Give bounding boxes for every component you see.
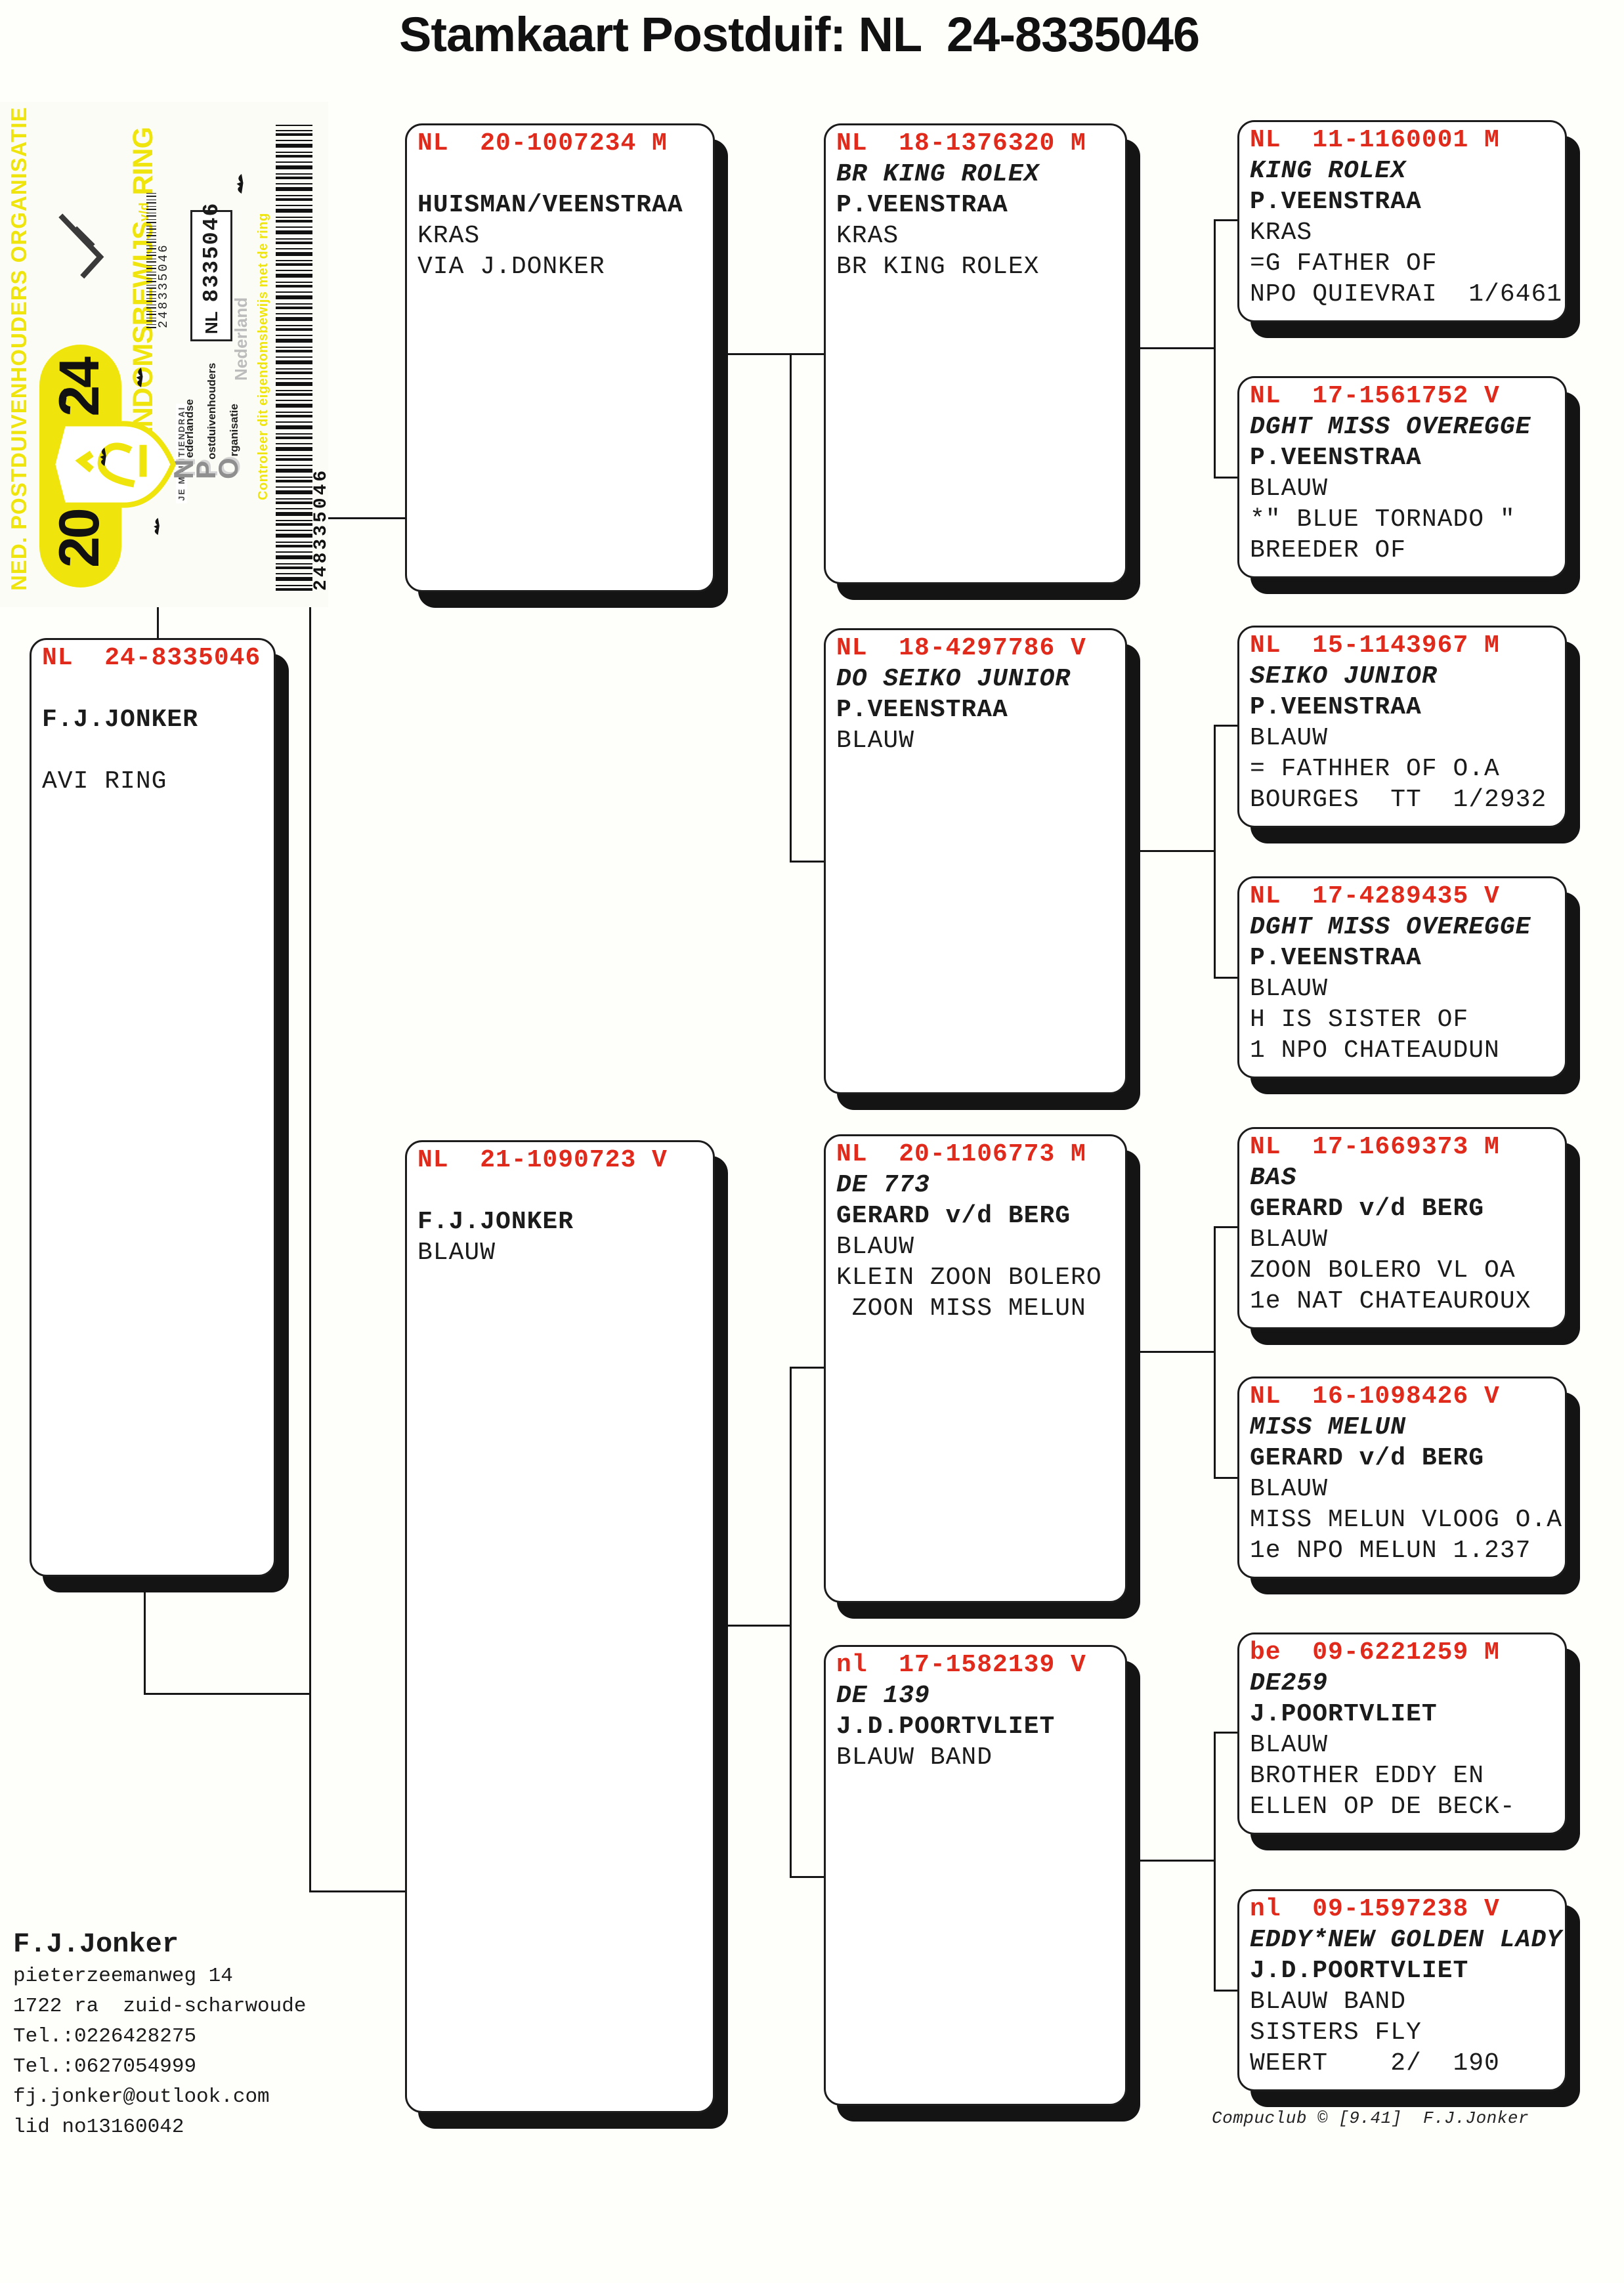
owner-name: HUISMAN/VEENSTRAA bbox=[417, 190, 709, 221]
pedigree-box-grandfather-paternal: NL 18-1376320 M BR KING ROLEX P.VEENSTRA… bbox=[824, 123, 1127, 584]
owner-name: J.POORTVLIET bbox=[1250, 1699, 1561, 1730]
ownership-ring: RING bbox=[127, 127, 159, 196]
connector-line bbox=[790, 1876, 825, 1878]
pedigree-box-grandmother-paternal: NL 18-4297786 V DO SEIKO JUNIOR P.VEENST… bbox=[824, 628, 1127, 1094]
pigeon-name: MISS MELUN bbox=[1250, 1412, 1561, 1443]
connector-line bbox=[790, 861, 825, 863]
pedigree-box-greatgrandparent-2: NL 17-1561752 V DGHT MISS OVEREGGE P.VEE… bbox=[1237, 376, 1567, 578]
npo-row: Postduivenhouders bbox=[190, 363, 213, 479]
ring-number-box: NL 8335046 bbox=[190, 210, 232, 341]
address-line: pieterzeemanweg 14 bbox=[13, 1961, 306, 1992]
owner-name: P.VEENSTRAA bbox=[1250, 186, 1561, 217]
color-line: BLAUW bbox=[1250, 473, 1561, 504]
note-line: 1 NPO CHATEAUDUN bbox=[1250, 1035, 1561, 1066]
note-line: BROTHER EDDY EN bbox=[1250, 1760, 1561, 1791]
note-line: *" BLUE TORNADO " bbox=[1250, 504, 1561, 535]
small-barcode bbox=[146, 190, 156, 328]
ring-number: nl 09-1597238 V bbox=[1250, 1894, 1561, 1925]
note-line: AVI RING bbox=[42, 766, 270, 797]
phone-line: Tel.:0226428275 bbox=[13, 2022, 306, 2052]
nederland-watermark: Nederland bbox=[231, 297, 251, 381]
pedigree-box-father: NL 20-1007234 M HUISMAN/VEENSTRAA KRAS V… bbox=[405, 123, 715, 592]
note-line: 1e NPO MELUN 1.237 bbox=[1250, 1535, 1561, 1566]
owner-name: J.D.POORTVLIET bbox=[836, 1711, 1121, 1742]
barcode bbox=[276, 125, 312, 591]
pedigree-box-greatgrandparent-8: nl 09-1597238 V EDDY*NEW GOLDEN LADY J.D… bbox=[1237, 1889, 1567, 2091]
ring-country: NL bbox=[202, 311, 222, 334]
color-line bbox=[42, 735, 270, 766]
phone-line: Tel.:0627054999 bbox=[13, 2052, 306, 2082]
ring-number: NL 17-1669373 M bbox=[1250, 1132, 1561, 1163]
software-credit: Compuclub © [9.41] F.J.Jonker bbox=[1212, 2108, 1529, 2128]
connector-line bbox=[1214, 1226, 1239, 1228]
pedigree-box-greatgrandparent-6: NL 16-1098426 V MISS MELUN GERARD v/d BE… bbox=[1237, 1376, 1567, 1579]
ring-number: NL 15-1143967 M bbox=[1250, 630, 1561, 661]
connector-line bbox=[1127, 850, 1216, 852]
ring-digits: 8335046 bbox=[200, 202, 224, 303]
owner-name: GERARD v/d BERG bbox=[836, 1201, 1121, 1231]
pigeon-silhouette-icon bbox=[98, 448, 111, 466]
color-line: KRAS bbox=[836, 221, 1121, 251]
owner-name: J.D.POORTVLIET bbox=[1250, 1955, 1561, 1986]
connector-line bbox=[1127, 1351, 1216, 1353]
color-line: BLAUW bbox=[1250, 1224, 1561, 1255]
connector-line bbox=[1214, 1732, 1216, 1992]
color-line: BLAUW bbox=[836, 725, 1121, 756]
color-line: BLAUW bbox=[417, 1237, 709, 1268]
owner-name: P.VEENSTRAA bbox=[836, 190, 1121, 221]
pedigree-box-mother: NL 21-1090723 V F.J.JONKER BLAUW bbox=[405, 1140, 715, 2113]
note-line bbox=[836, 1773, 1121, 1804]
connector-line bbox=[1214, 1226, 1216, 1479]
ring-number: NL 21-1090723 V bbox=[417, 1145, 709, 1176]
pigeon-name bbox=[417, 159, 709, 190]
ring-number: NL 18-4297786 V bbox=[836, 633, 1121, 664]
connector-line bbox=[144, 1575, 146, 1695]
pigeon-silhouette-icon bbox=[135, 368, 148, 387]
owner-name: GERARD v/d BERG bbox=[1250, 1443, 1561, 1474]
ring-ownership-sticker: NED. POSTDUIVENHOUDERS ORGANISATIE 20 24… bbox=[0, 102, 328, 607]
note-line: 1e NAT CHATEAUROUX bbox=[1250, 1286, 1561, 1317]
color-line: KRAS bbox=[417, 221, 709, 251]
pigeon-name: KING ROLEX bbox=[1250, 156, 1561, 186]
ring-number: be 09-6221259 M bbox=[1250, 1637, 1561, 1668]
note-line bbox=[417, 282, 709, 313]
note-line: ZOON BOLERO VL OA bbox=[1250, 1255, 1561, 1286]
color-line: BLAUW BAND bbox=[1250, 1986, 1561, 2017]
controleer-line: Controleer dit eigendomsbewijs met de ri… bbox=[256, 213, 271, 500]
ring-number: NL 17-1561752 V bbox=[1250, 381, 1561, 412]
pigeon-name: SEIKO JUNIOR bbox=[1250, 661, 1561, 692]
connector-line bbox=[144, 1693, 311, 1695]
color-line: BLAUW bbox=[1250, 973, 1561, 1004]
note-line: VIA J.DONKER bbox=[417, 251, 709, 282]
pigeon-name: DGHT MISS OVEREGGE bbox=[1250, 412, 1561, 442]
pigeon-name: DE 773 bbox=[836, 1170, 1121, 1201]
npo-org-line: NED. POSTDUIVENHOUDERS ORGANISATIE bbox=[7, 107, 32, 591]
ring-number: NL 11-1160001 M bbox=[1250, 125, 1561, 156]
connector-line bbox=[716, 1625, 791, 1627]
pen-mark-icon bbox=[56, 210, 108, 282]
year-left: 20 bbox=[47, 510, 112, 568]
note-line: BREEDER OF bbox=[1250, 535, 1561, 566]
pedigree-box-subject: NL 24-8335046 F.J.JONKER AVI RING bbox=[30, 638, 276, 1577]
note-line: SISTERS FLY bbox=[1250, 2017, 1561, 2048]
pigeon-name bbox=[42, 673, 270, 704]
connector-line bbox=[1127, 1860, 1216, 1862]
connector-line bbox=[309, 1890, 406, 1892]
ring-number: NL 17-4289435 V bbox=[1250, 881, 1561, 912]
color-line: BLAUW bbox=[836, 1231, 1121, 1262]
page-title: Stamkaart Postduif: NL 24-8335046 bbox=[399, 7, 1199, 62]
ring-number: NL 20-1007234 M bbox=[417, 128, 709, 159]
connector-line bbox=[790, 1367, 825, 1369]
pedigree-box-greatgrandparent-7: be 09-6221259 M DE259 J.POORTVLIET BLAUW… bbox=[1237, 1632, 1567, 1835]
owner-name: P.VEENSTRAA bbox=[1250, 692, 1561, 723]
note-line: = FATHHER OF O.A bbox=[1250, 754, 1561, 784]
note-line: ELLEN OP DE BECK- bbox=[1250, 1791, 1561, 1822]
note-line: MISS MELUN VLOOG O.A bbox=[1250, 1504, 1561, 1535]
owner-name: F.J.JONKER bbox=[42, 704, 270, 735]
pigeon-silhouette-icon bbox=[58, 388, 72, 410]
connector-line bbox=[1214, 977, 1239, 979]
pigeon-name bbox=[417, 1176, 709, 1206]
note-line: NPO QUIEVRAI 1/6461 bbox=[1250, 279, 1561, 310]
connector-line bbox=[1214, 477, 1239, 479]
pedigree-box-greatgrandparent-5: NL 17-1669373 M BAS GERARD v/d BERG BLAU… bbox=[1237, 1127, 1567, 1329]
fancier-name: F.J.Jonker bbox=[13, 1927, 306, 1961]
lion-crest-icon bbox=[47, 420, 182, 509]
small-barcode-number: 248335046 bbox=[156, 243, 171, 328]
owner-name: P.VEENSTRAA bbox=[1250, 943, 1561, 973]
color-line: BLAUW bbox=[1250, 723, 1561, 754]
pigeon-name: DE259 bbox=[1250, 1668, 1561, 1699]
connector-line bbox=[790, 1367, 792, 1878]
connector-line bbox=[1214, 725, 1239, 727]
fancier-contact-block: F.J.Jonker pieterzeemanweg 14 1722 ra zu… bbox=[13, 1927, 306, 2143]
note-line: BOURGES TT 1/2932 bbox=[1250, 784, 1561, 815]
pigeon-name: DE 139 bbox=[836, 1680, 1121, 1711]
barcode-number: 248335046 bbox=[311, 468, 331, 591]
note-line bbox=[417, 1299, 709, 1330]
note-line: H IS SISTER OF bbox=[1250, 1004, 1561, 1035]
ring-number: NL 16-1098426 V bbox=[1250, 1381, 1561, 1412]
pigeon-silhouette-icon bbox=[152, 518, 164, 535]
npo-word: rganisatie bbox=[228, 404, 240, 456]
pedigree-box-greatgrandparent-3: NL 15-1143967 M SEIKO JUNIOR P.VEENSTRAA… bbox=[1237, 626, 1567, 828]
owner-name: P.VEENSTRAA bbox=[1250, 442, 1561, 473]
color-line: BLAUW BAND bbox=[836, 1742, 1121, 1773]
pedigree-box-grandmother-maternal: nl 17-1582139 V DE 139 J.D.POORTVLIET BL… bbox=[824, 1645, 1127, 2106]
owner-name: GERARD v/d BERG bbox=[1250, 1193, 1561, 1224]
note-line: ZOON MISS MELUN bbox=[836, 1293, 1121, 1324]
address-line: 1722 ra zuid-scharwoude bbox=[13, 1992, 306, 2022]
connector-line bbox=[1214, 219, 1239, 221]
note-line: BR KING ROLEX bbox=[836, 251, 1121, 282]
note-line bbox=[836, 282, 1121, 313]
connector-line bbox=[1127, 347, 1216, 349]
ring-number: nl 17-1582139 V bbox=[836, 1650, 1121, 1680]
note-line bbox=[42, 797, 270, 828]
owner-name: F.J.JONKER bbox=[417, 1206, 709, 1237]
year-right: 24 bbox=[47, 359, 112, 417]
color-line: BLAUW bbox=[1250, 1730, 1561, 1760]
connector-line bbox=[309, 517, 311, 1892]
pigeon-name: EDDY*NEW GOLDEN LADY bbox=[1250, 1925, 1561, 1955]
pedigree-box-grandfather-maternal: NL 20-1106773 M DE 773 GERARD v/d BERG B… bbox=[824, 1134, 1127, 1603]
color-line: KRAS bbox=[1250, 217, 1561, 248]
connector-line bbox=[1214, 725, 1216, 979]
pigeon-name: DGHT MISS OVEREGGE bbox=[1250, 912, 1561, 943]
member-number-line: lid no13160042 bbox=[13, 2112, 306, 2143]
connector-line bbox=[790, 353, 792, 863]
connector-line bbox=[1214, 219, 1216, 479]
note-line bbox=[836, 1804, 1121, 1835]
ring-number: NL 20-1106773 M bbox=[836, 1139, 1121, 1170]
pigeon-name: BR KING ROLEX bbox=[836, 159, 1121, 190]
note-line bbox=[836, 787, 1121, 818]
connector-line bbox=[1214, 1990, 1239, 1992]
color-line: BLAUW bbox=[1250, 1474, 1561, 1504]
pedigree-box-greatgrandparent-1: NL 11-1160001 M KING ROLEX P.VEENSTRAA K… bbox=[1237, 120, 1567, 322]
note-line bbox=[417, 1268, 709, 1299]
pigeon-name: DO SEIKO JUNIOR bbox=[836, 664, 1121, 694]
connector-line bbox=[1214, 1732, 1239, 1734]
connector-line bbox=[716, 353, 825, 355]
pedigree-box-greatgrandparent-4: NL 17-4289435 V DGHT MISS OVEREGGE P.VEE… bbox=[1237, 876, 1567, 1078]
note-line: WEERT 2/ 190 bbox=[1250, 2048, 1561, 2079]
ring-number: NL 24-8335046 bbox=[42, 643, 270, 673]
npo-initial: O bbox=[213, 458, 244, 479]
note-line: KLEIN ZOON BOLERO bbox=[836, 1262, 1121, 1293]
note-line bbox=[836, 756, 1121, 787]
ring-number: NL 18-1376320 M bbox=[836, 128, 1121, 159]
connector-line bbox=[1214, 1477, 1239, 1479]
email-line: fj.jonker@outlook.com bbox=[13, 2082, 306, 2112]
note-line: =G FATHER OF bbox=[1250, 248, 1561, 279]
owner-name: P.VEENSTRAA bbox=[836, 694, 1121, 725]
pigeon-name: BAS bbox=[1250, 1163, 1561, 1193]
connector-line bbox=[157, 603, 159, 639]
pigeon-silhouette-icon bbox=[235, 174, 248, 194]
